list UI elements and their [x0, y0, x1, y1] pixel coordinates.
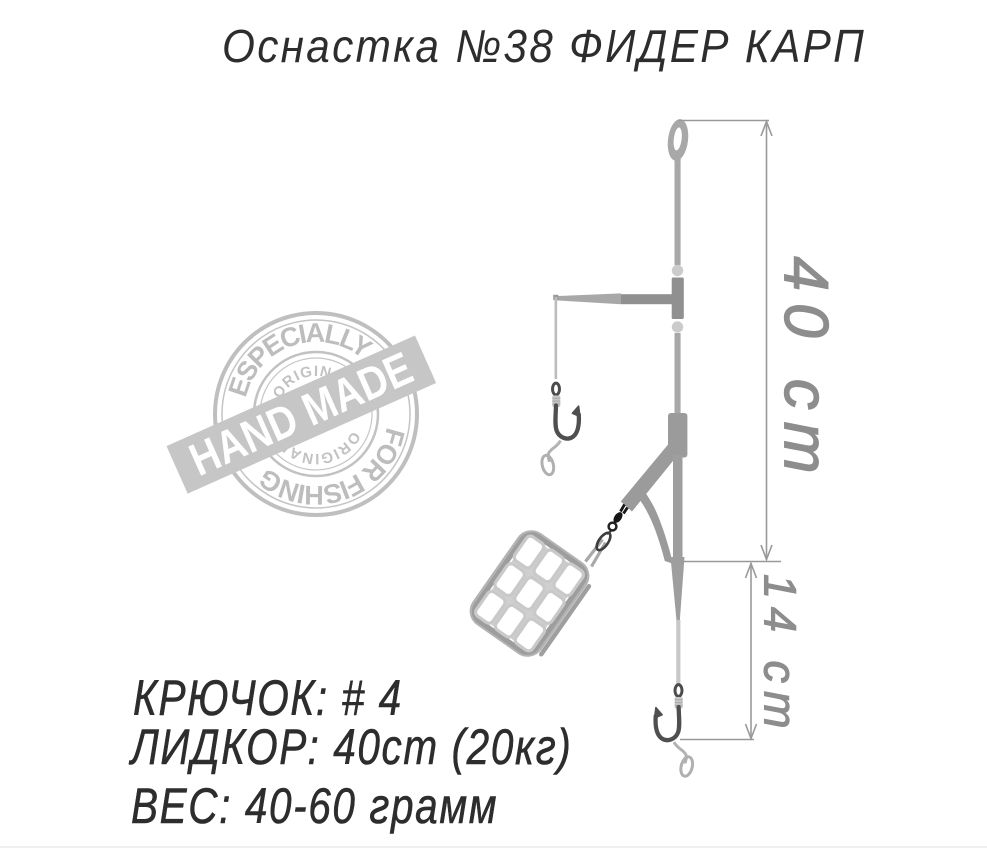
- svg-text:14 cm: 14 cm: [755, 574, 806, 737]
- svg-text:40 cm: 40 cm: [771, 257, 840, 486]
